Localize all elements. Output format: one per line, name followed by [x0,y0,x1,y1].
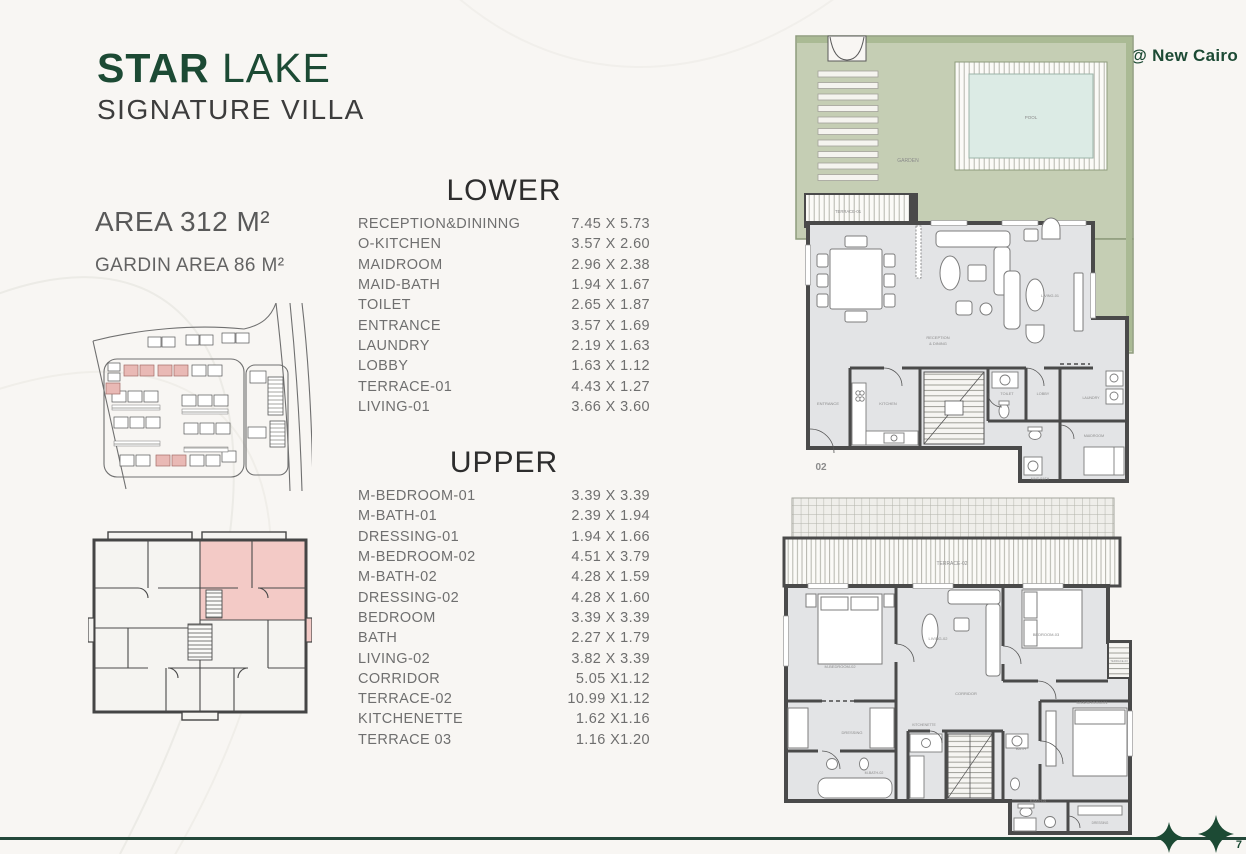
table-row: O-KITCHEN3.57 X 2.60 [358,234,650,254]
table-row: LAUNDRY2.19 X 1.63 [358,336,650,356]
pergola-grid [792,498,1114,538]
project-title-block: STAR LAKE SIGNATURE VILLA [97,46,365,126]
dressing-right-closets [1078,806,1122,815]
living-02-label: LIVING-02 [929,636,949,641]
table-row: DRESSING-011.94 X 1.66 [358,527,650,547]
m-bath-01-label: M-BATH-01 [1030,799,1047,803]
star-icon [1154,822,1184,853]
footer-rule [0,837,1246,840]
upper-table-heading: UPPER [358,446,650,480]
location-tag: @ New Cairo [1130,46,1238,66]
lobby-label: LOBBY [1037,392,1050,396]
stairs [206,590,222,618]
m-bedroom-02-label: M-BEDROOM-02 [824,664,856,669]
upper-floor-table: UPPER M-BEDROOM-013.39 X 3.39 M-BATH-012… [358,446,650,750]
master-plan-map [90,303,312,491]
terrace-02: TERRACE-02 [784,538,1120,586]
side-bay [88,618,94,642]
upper-floor-plan: TERRACE-02 TERRACE-03 [778,496,1138,836]
table-row: BEDROOM3.39 X 3.39 [358,608,650,628]
toilet-label: TOILET [1000,392,1014,396]
table-row: M-BEDROOM-013.39 X 3.39 [358,486,650,506]
project-title-light: LAKE [222,45,331,91]
footer-stars [1121,810,1241,854]
garden-area-label: GARDIN AREA 86 M² [95,255,284,277]
table-row: BATH2.27 X 1.79 [358,628,650,648]
reception-label2: & DINING [929,341,947,346]
stairs [188,624,212,660]
table-row: MAIDROOM2.96 X 2.38 [358,255,650,275]
garden-gate [828,36,866,61]
project-title-bold: STAR [97,45,210,91]
living-01-label: LIVING-01 [1041,294,1059,298]
m-bath-02-label: M-BATH-02 [865,771,884,775]
svg-text:POOL: POOL [1025,115,1038,120]
table-row: KITCHENETTE1.62 X1.16 [358,709,650,729]
m-bedroom-01-label: M-BEDROOM-01 [1076,700,1108,705]
svg-text:TERRACE-02: TERRACE-02 [936,561,967,567]
kitchen-label: KITCHEN [879,401,897,406]
svg-text:TERRACE-01: TERRACE-01 [835,209,862,214]
stairs [948,734,992,798]
lower-floor-plan: POOL GARDEN TERRACE-01 [788,33,1140,485]
corridor-label: CORRIDOR [955,691,977,696]
project-subtitle: SIGNATURE VILLA [97,94,365,126]
area-label: AREA 312 M² [95,206,270,238]
apartment-slabs [268,377,285,447]
maidroom-label: MAIDROOM [1084,434,1104,438]
lower-floor-table: LOWER RECEPTION&DININNG7.45 X 5.73 O-KIT… [358,174,650,417]
table-row: M-BATH-024.28 X 1.59 [358,567,650,587]
table-row: TERRACE-014.43 X 1.27 [358,376,650,396]
reception-label: RECEPTION [926,335,949,340]
lower-table-heading: LOWER [358,174,650,208]
bedroom-03-furniture [1022,590,1082,648]
maid-bath-label: MAID-BATH [1031,477,1050,481]
mullion-wall [916,226,921,278]
table-row: MAID-BATH1.94 X 1.67 [358,275,650,295]
entrance-label: ENTRANCE [817,401,839,406]
laundry-label: LAUNDRY [1082,396,1100,400]
page-number: 7 [1236,839,1242,851]
table-row: M-BEDROOM-024.51 X 3.79 [358,547,650,567]
table-row: M-BATH-012.39 X 1.94 [358,506,650,526]
table-row: RECEPTION&DININNG7.45 X 5.73 [358,214,650,234]
unit-number-label: 02 [815,462,827,473]
table-row: LOBBY1.63 X 1.12 [358,356,650,376]
project-title: STAR LAKE [97,46,365,91]
brochure-page: STAR LAKE SIGNATURE VILLA @ New Cairo AR… [0,0,1246,854]
star-icon [1198,815,1234,853]
garden-label: GARDEN [897,158,919,164]
entry-porch [182,712,218,720]
pool: POOL [955,62,1107,170]
bath-label: BATH [1016,746,1026,751]
terrace-03: TERRACE-03 [1108,642,1130,678]
bedroom-03-label: BEDROOM-03 [1033,632,1060,637]
table-row: LIVING-023.82 X 3.39 [358,648,650,668]
stairs [924,372,984,444]
dressing-right-label: DRESSING [1092,821,1109,825]
table-row: CORRIDOR5.05 X1.12 [358,669,650,689]
table-row: TERRACE 031.16 X1.20 [358,730,650,750]
table-row: LIVING-013.66 X 3.60 [358,397,650,417]
table-row: ENTRANCE3.57 X 1.69 [358,315,650,335]
side-bay [306,618,312,642]
unit-locator-plan [88,528,312,724]
table-row: TERRACE-0210.99 X1.12 [358,689,650,709]
svg-text:TERRACE-03: TERRACE-03 [1110,659,1128,663]
table-row: DRESSING-024.28 X 1.60 [358,587,650,607]
table-row: TOILET2.65 X 1.87 [358,295,650,315]
dressing-left-label: DRESSING [842,730,863,735]
kitchenette-label: KITCHENETTE [912,723,936,727]
